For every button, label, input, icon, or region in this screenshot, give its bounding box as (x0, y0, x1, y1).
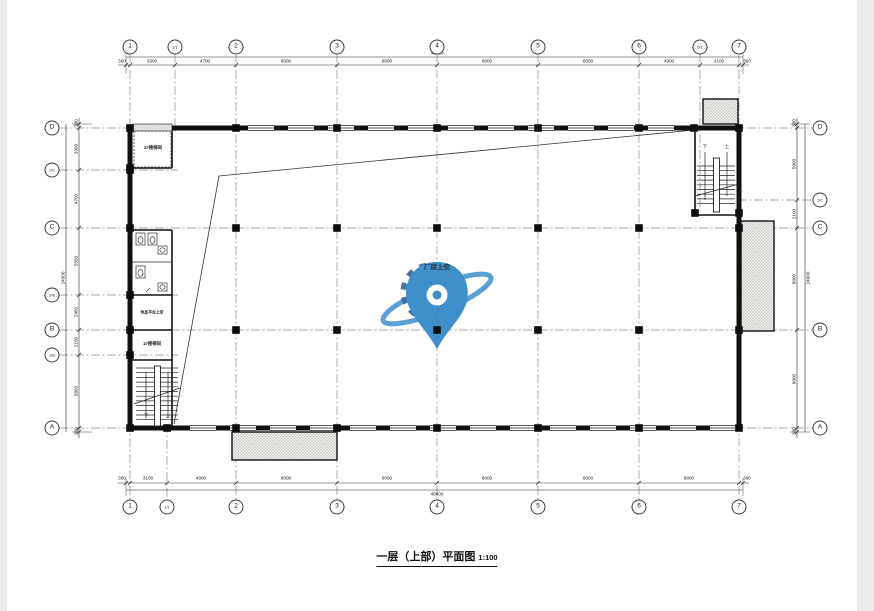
stair1-down-label: 下 (144, 413, 148, 419)
grid-bubble-bottom-5: 5 (531, 500, 546, 515)
toilet-fixtures (132, 233, 172, 292)
dim-right-4: 8000 (792, 374, 797, 384)
dim-left-overall: 24000 (61, 272, 66, 285)
dim-left-0: 300 (74, 119, 79, 127)
grid-bubble-top-1: 1 (123, 40, 138, 55)
grid-bubble-bottom-4: 4 (430, 500, 445, 515)
dim-top-0: 300 (118, 59, 126, 64)
dim-bottom-1: 3100 (143, 476, 153, 481)
grid-bubble-left-D: D (45, 121, 60, 136)
grid-bubble-bottom-7: 7 (732, 500, 747, 515)
dim-top-9: 300 (743, 59, 751, 64)
stair1-up-label: 上 (166, 413, 170, 419)
dim-top-5: 8000 (482, 59, 492, 64)
dim-bottom-overall: 48000 (431, 492, 444, 497)
grid-bubble-top-6: 6 (632, 40, 647, 55)
dim-left-4: 2450 (74, 307, 79, 317)
watermark-logo (378, 262, 495, 349)
dim-right-5: 300 (792, 427, 797, 435)
stair3-up-label: 上 (725, 144, 729, 150)
grid-bubble-top-6-1: 6/1 (693, 40, 708, 55)
dim-top-6: 8000 (583, 59, 593, 64)
dim-bottom-3: 8000 (281, 476, 291, 481)
dim-top-8: 3100 (714, 59, 724, 64)
dim-top-4: 8000 (382, 59, 392, 64)
grid-bubble-top-5: 5 (531, 40, 546, 55)
drawing-title-block: 一层（上部）平面图1:100 (376, 547, 497, 567)
room-label-stair1: 1#楼梯间 (143, 341, 161, 347)
dim-top-2: 4700 (200, 59, 210, 64)
dim-left-7: 300 (74, 427, 79, 435)
void-label: 厂房上空 (424, 261, 450, 271)
screenshot-root: 厂房上空 2#楼梯间 休息平台上空 1#楼梯间 下 上 下 上 48000 48… (0, 0, 874, 611)
grid-bubble-right-C: C (813, 221, 828, 236)
dim-left-6: 5850 (74, 386, 79, 396)
dim-bottom-7: 8000 (684, 476, 694, 481)
dim-bottom-5: 8000 (482, 476, 492, 481)
dim-right-1: 5900 (792, 159, 797, 169)
grid-bubble-left-A: A (45, 421, 60, 436)
dim-right-2: 2100 (792, 209, 797, 219)
grid-bubble-left-1-C: 1/C (45, 163, 60, 178)
grid-bubble-right-D: D (813, 121, 828, 136)
grid-bubble-left-2-B: 2/B (45, 288, 60, 303)
stair3-down-label: 下 (703, 144, 707, 150)
dim-bottom-6: 8000 (583, 476, 593, 481)
dim-top-3: 8000 (281, 59, 291, 64)
grid-bubble-left-1-B: 1/B (45, 348, 60, 363)
grid-bubble-top-2: 2 (229, 40, 244, 55)
dim-bottom-8: 300 (743, 476, 751, 481)
dim-right-3: 8000 (792, 274, 797, 284)
dim-top-1: 3300 (147, 59, 157, 64)
grid-bubble-top-7: 7 (732, 40, 747, 55)
dim-bottom-2: 4900 (196, 476, 206, 481)
grid-bubble-left-B: B (45, 323, 60, 338)
grid-bubble-right-B: B (813, 323, 828, 338)
grid-bubble-top-1-1: 1/1 (168, 40, 183, 55)
grid-bubble-bottom-1-1: 1/1 (160, 500, 175, 515)
dim-right-0: 300 (792, 119, 797, 127)
dim-top-7: 4900 (664, 59, 674, 64)
grid-bubble-bottom-2: 2 (229, 500, 244, 515)
stair-1-bottom-left (134, 366, 180, 426)
dim-left-2: 4700 (74, 194, 79, 204)
drawing-title: 一层（上部）平面图 (376, 551, 475, 563)
dim-left-5: 2150 (74, 337, 79, 347)
grid-bubble-right-A: A (813, 421, 828, 436)
room-label-landing: 休息平台上空 (141, 311, 164, 316)
dim-bottom-0: 300 (118, 476, 126, 481)
grid-bubble-right-1-C: 1/C (813, 193, 828, 208)
dim-left-1: 3300 (74, 144, 79, 154)
dim-bottom-4: 8000 (382, 476, 392, 481)
grid-bubble-bottom-6: 6 (632, 500, 647, 515)
grid-bubble-left-C: C (45, 221, 60, 236)
room-label-stair2: 2#楼梯间 (144, 145, 162, 151)
grid-bubble-bottom-3: 3 (330, 500, 345, 515)
drawing-scale: 1:100 (478, 553, 497, 562)
grid-bubble-top-4: 4 (430, 40, 445, 55)
floor-plan-linework (0, 0, 874, 611)
grid-bubble-bottom-1: 1 (123, 500, 138, 515)
stair-3-top-right (695, 152, 739, 212)
dim-right-overall: 24000 (806, 272, 811, 285)
grid-bubble-top-3: 3 (330, 40, 345, 55)
dim-left-3: 5550 (74, 256, 79, 266)
